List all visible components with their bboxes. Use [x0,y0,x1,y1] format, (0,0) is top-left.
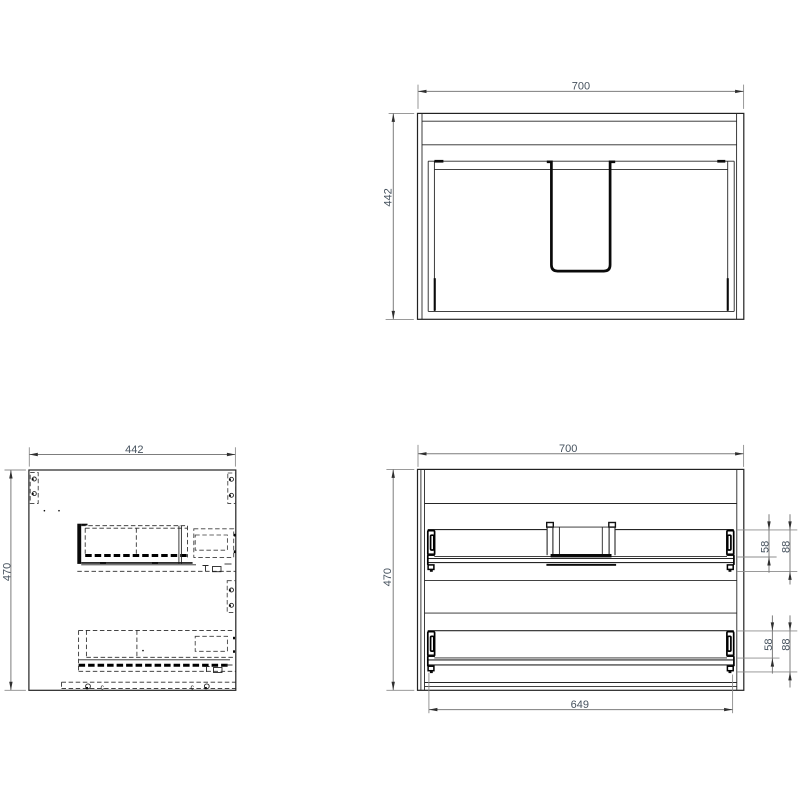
svg-text:442: 442 [125,444,143,456]
svg-text:470: 470 [382,568,394,586]
svg-text:649: 649 [571,699,589,711]
svg-text:58: 58 [763,638,775,650]
svg-text:88: 88 [780,638,792,650]
svg-text:c: c [101,685,105,692]
svg-text:88: 88 [780,541,792,553]
svg-text:58: 58 [759,541,771,553]
svg-text:442: 442 [383,188,395,206]
svg-text:700: 700 [572,81,590,93]
svg-text:700: 700 [559,443,577,455]
svg-text:c: c [191,685,195,692]
svg-text:470: 470 [1,563,13,581]
